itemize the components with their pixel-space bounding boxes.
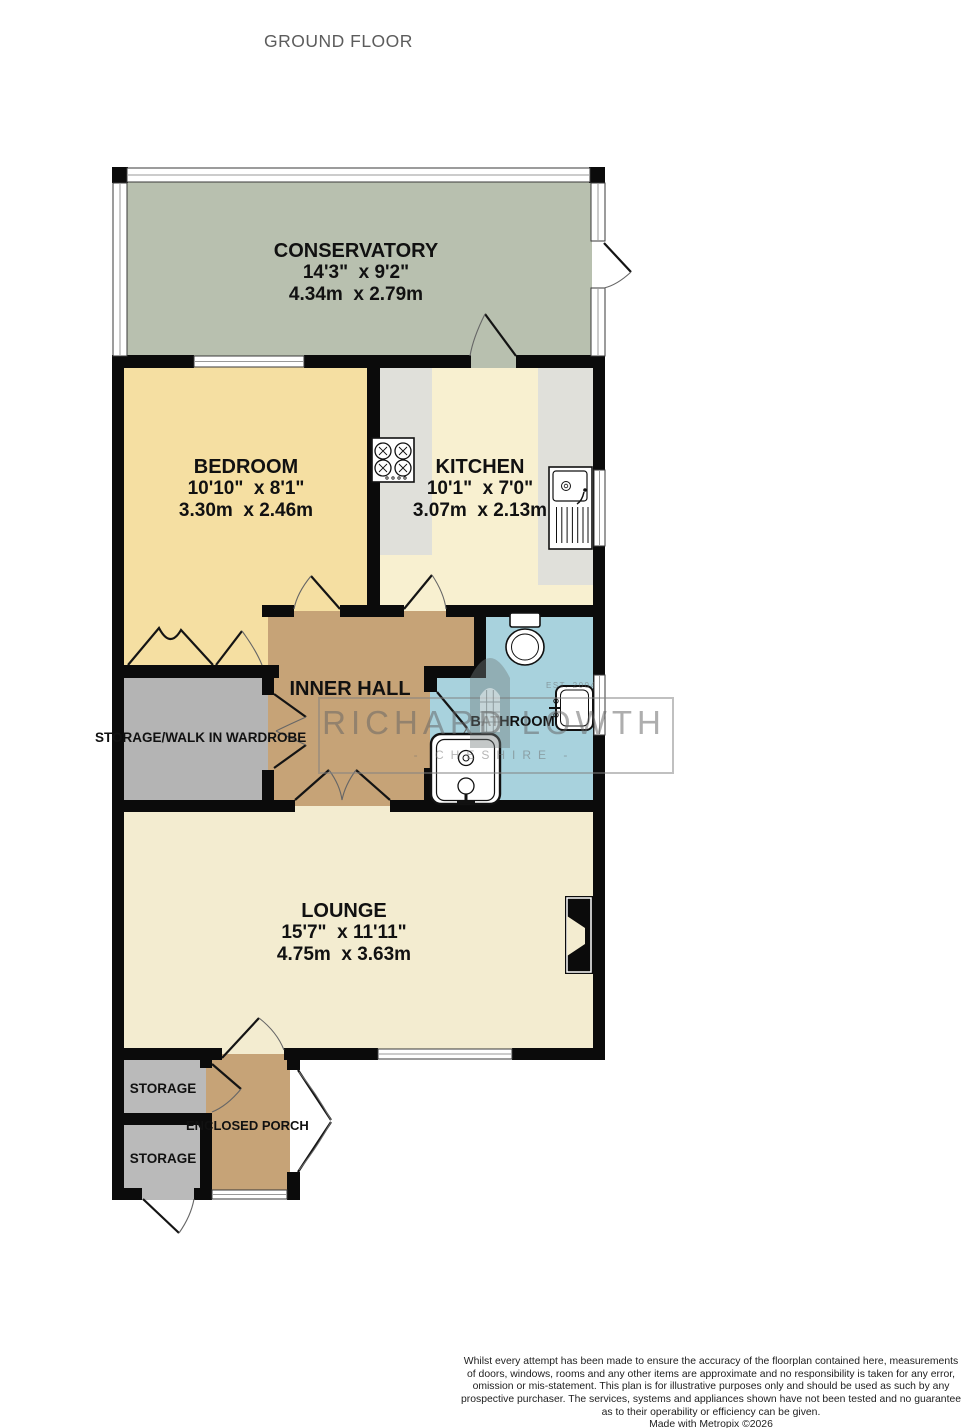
room-fills (118, 172, 598, 1194)
conservatory-floor (118, 172, 592, 362)
porch-floor (205, 1056, 290, 1194)
door-opening (294, 605, 340, 611)
window (212, 1190, 287, 1199)
inner-hall-floor (268, 608, 480, 672)
door-opening (262, 695, 268, 770)
door-opening (295, 800, 390, 806)
wall-segment (287, 1058, 300, 1070)
wall-segment (112, 800, 295, 812)
wall-segment (287, 1172, 300, 1200)
hob-icon (372, 438, 414, 482)
wall-segment (112, 1048, 222, 1060)
wall-segment (112, 355, 194, 368)
door-leaf (604, 243, 631, 272)
wall-segment (516, 355, 605, 368)
french-door-leaves (298, 1070, 331, 1172)
disclaimer-line: omission or mis-statement. This plan is … (450, 1381, 972, 1394)
window (591, 288, 605, 356)
floorplan-page: GROUND FLOOR (0, 0, 980, 1428)
wall-segment (262, 665, 274, 695)
wall-segment (112, 1113, 212, 1125)
disclaimer-line: prospective purchaser. The services, sys… (450, 1394, 972, 1407)
door-opening (404, 605, 446, 611)
window (378, 1049, 512, 1059)
door-arc (604, 272, 631, 288)
wall-segment (112, 167, 128, 183)
wall-segment (112, 1188, 142, 1200)
storage-top-floor (120, 1056, 205, 1118)
door-leaf (143, 1199, 179, 1233)
disclaimer-line: of doors, windows, rooms and any other i… (450, 1369, 972, 1382)
wall-segment (424, 666, 437, 692)
floorplan-drawing (0, 0, 980, 1428)
wall-segment (200, 1060, 212, 1068)
door-opening (142, 1188, 194, 1200)
door-arc (299, 1072, 331, 1170)
disclaimer: Whilst every attempt has been made to en… (450, 1356, 972, 1428)
door-opening (200, 1068, 206, 1113)
window (594, 675, 605, 735)
window (591, 183, 605, 241)
wall-segment (112, 355, 124, 1200)
door-opening (206, 1068, 212, 1113)
door-arc (179, 1199, 194, 1233)
door-opening (268, 695, 274, 770)
window (594, 470, 605, 546)
lounge-floor (120, 806, 594, 1056)
door-opening (404, 611, 446, 617)
window (127, 168, 590, 182)
window (194, 356, 304, 367)
bathtub-icon (431, 734, 500, 804)
toilet-icon (506, 613, 544, 665)
wall-segment (512, 1048, 605, 1060)
door-opening (470, 355, 517, 368)
disclaimer-line: Whilst every attempt has been made to en… (450, 1356, 972, 1369)
door-opening (294, 611, 340, 617)
door-opening (222, 1054, 284, 1060)
wall-segment (194, 1188, 212, 1200)
metropix-credit: Made with Metropix ©2026 (450, 1419, 972, 1428)
wall-segment (262, 605, 294, 617)
wall-segment (367, 368, 380, 608)
storage-bottom-floor (120, 1121, 205, 1191)
wardrobe-floor (120, 670, 268, 806)
door-opening (295, 806, 390, 812)
basin-icon (549, 686, 593, 730)
wall-segment (340, 605, 404, 617)
inner-hall-floor (268, 672, 432, 808)
disclaimer-line: as to their operability or efficiency ca… (450, 1407, 972, 1420)
door-opening (424, 692, 430, 768)
wall-segment (304, 355, 471, 368)
wall-segment (589, 167, 605, 183)
kitchen-sink-icon (549, 467, 592, 549)
window (113, 183, 127, 356)
wall-segment (112, 665, 279, 678)
